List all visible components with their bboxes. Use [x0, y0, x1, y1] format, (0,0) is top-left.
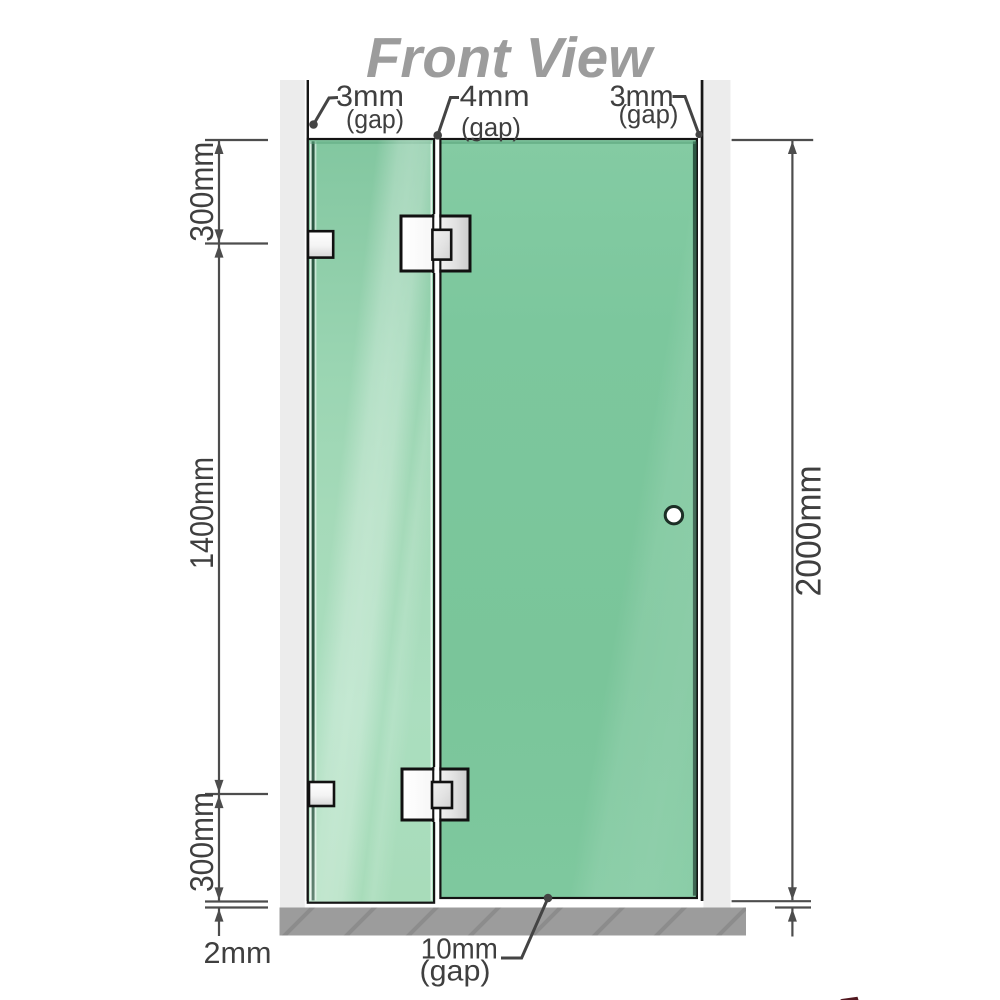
svg-text:300mm: 300mm: [183, 792, 220, 892]
svg-text:(gap): (gap): [420, 956, 491, 988]
svg-text:300mm: 300mm: [183, 142, 220, 242]
svg-text:4mm: 4mm: [460, 80, 530, 113]
svg-text:(gap): (gap): [461, 112, 521, 142]
svg-text:2000mm: 2000mm: [789, 466, 829, 597]
svg-text:2mm: 2mm: [204, 937, 272, 970]
svg-text:(gap): (gap): [346, 104, 404, 134]
svg-text:1400mm: 1400mm: [183, 457, 220, 569]
svg-text:(gap): (gap): [619, 99, 679, 129]
